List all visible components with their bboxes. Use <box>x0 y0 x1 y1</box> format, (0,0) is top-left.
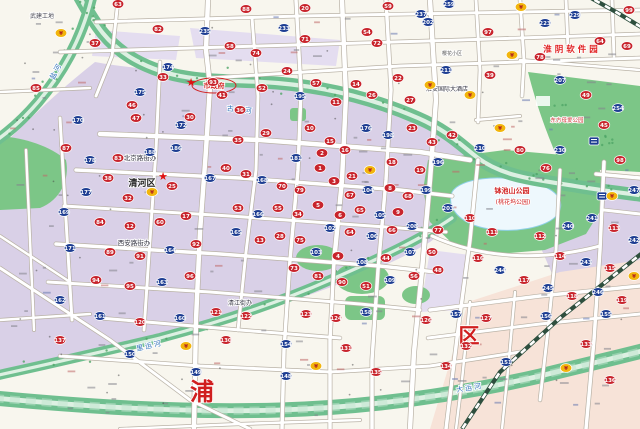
svg-text:254: 254 <box>612 106 624 112</box>
svg-text:207: 207 <box>554 78 566 84</box>
poi-marker: 202 <box>422 18 434 27</box>
svg-text:24: 24 <box>283 69 291 75</box>
svg-text:126: 126 <box>420 318 432 324</box>
svg-text:247: 247 <box>628 188 640 194</box>
poi-marker: 188 <box>144 148 156 157</box>
svg-text:114: 114 <box>554 254 566 260</box>
poi-marker: 108 <box>356 258 368 267</box>
poi-marker: 6 <box>334 211 346 220</box>
poi-marker: 16 <box>339 146 351 155</box>
svg-text:35: 35 <box>234 138 242 144</box>
svg-text:50: 50 <box>428 250 436 256</box>
poi-marker: 123 <box>300 310 312 319</box>
svg-text:49: 49 <box>582 93 590 99</box>
svg-text:43: 43 <box>428 140 436 146</box>
svg-text:133: 133 <box>580 342 592 348</box>
svg-text:41: 41 <box>218 93 226 99</box>
svg-text:242: 242 <box>628 238 640 244</box>
svg-text:52: 52 <box>258 86 266 92</box>
svg-text:105: 105 <box>374 213 386 219</box>
svg-text:40: 40 <box>222 166 230 172</box>
svg-text:39: 39 <box>486 73 494 79</box>
poi-marker: 121 <box>210 308 222 317</box>
poi-marker: 42 <box>446 131 458 140</box>
svg-text:13: 13 <box>256 238 264 244</box>
svg-text:117: 117 <box>518 278 530 284</box>
poi-marker: 244 <box>494 266 506 275</box>
poi-marker: 43 <box>426 138 438 147</box>
poi-marker: 132 <box>460 342 472 351</box>
poi-marker: 230 <box>554 146 566 155</box>
poi-marker: 89 <box>104 248 116 257</box>
poi-marker: 5 <box>312 201 324 210</box>
svg-text:¥: ¥ <box>564 366 568 372</box>
poi-marker: 102 <box>324 224 336 233</box>
poi-marker: 71 <box>299 35 311 44</box>
svg-text:103: 103 <box>310 250 322 256</box>
svg-text:25: 25 <box>168 184 176 190</box>
poi-marker: 167 <box>204 174 216 183</box>
svg-text:158: 158 <box>360 310 372 316</box>
svg-text:259: 259 <box>443 2 455 8</box>
poi-marker: 59 <box>382 2 394 11</box>
svg-text:172: 172 <box>175 123 187 129</box>
svg-text:131: 131 <box>340 346 352 352</box>
poi-marker: 82 <box>152 25 164 34</box>
poi-marker: 170 <box>72 116 84 125</box>
poi-marker: 77 <box>432 226 444 235</box>
svg-text:195: 195 <box>294 94 306 100</box>
svg-text:165: 165 <box>230 230 242 236</box>
poi-marker: 223 <box>539 19 551 28</box>
poi-marker: 118 <box>566 292 578 301</box>
poi-marker: 80 <box>514 146 526 155</box>
svg-text:156: 156 <box>540 314 552 320</box>
poi-marker: 207 <box>554 76 566 85</box>
poi-marker: 40 <box>220 164 232 173</box>
svg-text:162: 162 <box>54 298 66 304</box>
svg-text:243: 243 <box>580 260 592 266</box>
poi-marker: 98 <box>614 156 626 165</box>
poi-marker: 254 <box>612 104 624 113</box>
poi-marker: 114 <box>554 252 566 261</box>
poi-marker: 31 <box>240 170 252 179</box>
svg-text:181: 181 <box>290 156 302 162</box>
svg-text:30: 30 <box>186 115 194 121</box>
poi-marker: 75 <box>294 236 306 245</box>
svg-text:127: 127 <box>480 316 492 322</box>
svg-text:148: 148 <box>280 374 292 380</box>
poi-marker: 148 <box>280 372 292 381</box>
svg-text:14: 14 <box>352 82 360 88</box>
poi-marker: 181 <box>290 154 302 163</box>
svg-text:20: 20 <box>301 6 309 12</box>
svg-text:¥: ¥ <box>468 93 472 99</box>
poi-marker: 19 <box>414 166 426 175</box>
poi-marker: 163 <box>156 278 168 287</box>
poi-marker: 60 <box>154 218 166 227</box>
poi-marker: 162 <box>54 296 66 305</box>
svg-text:85: 85 <box>32 86 40 92</box>
poi-marker: 113 <box>608 224 620 233</box>
poi-marker: 67 <box>344 191 356 200</box>
poi-marker: 115 <box>604 264 616 273</box>
svg-text:81: 81 <box>314 274 322 280</box>
svg-text:15: 15 <box>326 139 334 145</box>
poi-marker: 35 <box>232 136 244 145</box>
svg-text:9: 9 <box>396 210 400 216</box>
svg-text:45: 45 <box>600 123 608 129</box>
poi-marker: 243 <box>580 258 592 267</box>
poi-marker: 160 <box>174 314 186 323</box>
poi-marker: 65 <box>354 206 366 215</box>
svg-text:64: 64 <box>596 39 604 45</box>
svg-text:134: 134 <box>440 364 452 370</box>
svg-text:26: 26 <box>368 93 376 99</box>
map-frame: 武建工地北京路街办西安路街办清江街办市政府淮阴软件园东方母爱公园淮安国际大酒店钵… <box>0 0 640 429</box>
poi-marker: 174 <box>162 63 174 72</box>
svg-text:240: 240 <box>562 224 574 230</box>
svg-text:235: 235 <box>199 29 211 35</box>
poi-marker: 177 <box>80 188 92 197</box>
poi-marker: 242 <box>628 236 640 245</box>
svg-text:59: 59 <box>384 4 392 10</box>
poi-marker: 186 <box>170 144 182 153</box>
svg-text:6: 6 <box>338 213 342 219</box>
svg-text:99: 99 <box>625 8 633 14</box>
poi-marker: 58 <box>224 42 236 51</box>
svg-text:54: 54 <box>363 30 371 36</box>
poi-marker: 131 <box>340 344 352 353</box>
poi-marker: 229 <box>569 11 581 20</box>
poi-marker: 39 <box>484 71 496 80</box>
svg-text:211: 211 <box>440 68 452 74</box>
poi-marker: 56 <box>408 272 420 281</box>
poi-marker: 73 <box>288 264 300 273</box>
svg-text:47: 47 <box>132 116 140 122</box>
poi-marker: 26 <box>366 91 378 100</box>
poi-marker: ¥ <box>606 192 618 201</box>
svg-text:¥: ¥ <box>314 364 318 370</box>
svg-text:¥: ¥ <box>498 126 502 132</box>
svg-text:38: 38 <box>104 176 112 182</box>
svg-text:104: 104 <box>362 188 374 194</box>
svg-text:230: 230 <box>554 148 566 154</box>
svg-text:19: 19 <box>416 168 424 174</box>
poi-marker: 28 <box>274 232 286 241</box>
svg-text:33: 33 <box>159 75 167 81</box>
svg-text:110: 110 <box>464 216 476 222</box>
svg-text:74: 74 <box>252 51 260 57</box>
svg-text:237: 237 <box>415 12 427 18</box>
poi-marker: 23 <box>406 124 418 133</box>
svg-text:5: 5 <box>316 203 320 209</box>
svg-text:51: 51 <box>362 284 370 290</box>
svg-text:63: 63 <box>114 2 122 8</box>
poi-marker: 165 <box>230 228 242 237</box>
svg-text:199: 199 <box>420 188 432 194</box>
svg-text:92: 92 <box>192 242 200 248</box>
poi-marker: 22 <box>392 74 404 83</box>
poi-marker: ¥ <box>494 124 506 133</box>
poi-marker: 96 <box>184 272 196 281</box>
svg-text:42: 42 <box>448 133 456 139</box>
svg-text:53: 53 <box>234 206 242 212</box>
poi-marker: ¥ <box>628 272 640 281</box>
poi-marker: 48 <box>432 266 444 275</box>
svg-text:170: 170 <box>72 118 84 124</box>
poi-marker: 135 <box>370 368 382 377</box>
poi-label: 樱花小区 <box>442 50 462 57</box>
svg-text:171: 171 <box>64 246 76 252</box>
poi-marker: 3 <box>328 177 340 186</box>
svg-text:28: 28 <box>276 234 284 240</box>
poi-marker: 72 <box>371 39 383 48</box>
svg-text:68: 68 <box>404 194 412 200</box>
svg-text:175: 175 <box>134 90 146 96</box>
svg-text:37: 37 <box>91 41 99 47</box>
poi-marker: 233 <box>278 24 290 33</box>
svg-text:121: 121 <box>210 310 222 316</box>
poi-marker: 235 <box>199 27 211 36</box>
poi-label: 钵池山公园 <box>494 186 530 195</box>
svg-text:23: 23 <box>408 126 416 132</box>
poi-marker: 151 <box>500 358 512 367</box>
poi-marker: 164 <box>164 246 176 255</box>
poi-marker: 245 <box>542 284 554 293</box>
poi-marker: 66 <box>386 226 398 235</box>
poi-marker: 199 <box>420 186 432 195</box>
svg-text:89: 89 <box>106 250 114 256</box>
poi-marker: 208 <box>406 222 418 231</box>
svg-text:130: 130 <box>220 338 232 344</box>
poi-marker: 32 <box>122 194 134 203</box>
poi-marker: 111 <box>486 228 498 237</box>
poi-label: 淮阴软件园 <box>543 44 601 55</box>
poi-marker: 9 <box>392 208 404 217</box>
svg-text:48: 48 <box>434 268 442 274</box>
svg-text:32: 32 <box>124 196 132 202</box>
poi-marker: 110 <box>464 214 476 223</box>
svg-text:169: 169 <box>58 210 70 216</box>
svg-text:¥: ¥ <box>610 194 614 200</box>
poi-marker: 11 <box>330 98 342 107</box>
poi-marker: 136 <box>604 376 616 385</box>
svg-text:¥: ¥ <box>510 53 514 59</box>
poi-marker: 133 <box>580 340 592 349</box>
svg-text:203: 203 <box>442 206 454 212</box>
poi-marker: ¥ <box>424 81 436 90</box>
poi-marker: 203 <box>442 204 454 213</box>
poi-marker: 85 <box>30 84 42 93</box>
poi-label: 清江街办 <box>228 299 252 307</box>
svg-text:168: 168 <box>256 178 268 184</box>
svg-text:4: 4 <box>336 254 340 260</box>
svg-text:164: 164 <box>164 248 176 254</box>
svg-text:27: 27 <box>406 98 414 104</box>
poi-marker: ¥ <box>506 51 518 60</box>
svg-text:18: 18 <box>388 160 396 166</box>
svg-text:98: 98 <box>616 158 624 164</box>
svg-text:136: 136 <box>604 378 616 384</box>
svg-text:166: 166 <box>252 212 264 218</box>
svg-text:198: 198 <box>382 133 394 139</box>
star-icon: ★ <box>186 76 196 89</box>
poi-marker: 149 <box>190 368 202 377</box>
svg-text:157: 157 <box>450 312 462 318</box>
poi-marker: 169 <box>58 208 70 217</box>
poi-marker: 57 <box>310 79 322 88</box>
poi-marker: 95 <box>124 282 136 291</box>
svg-text:67: 67 <box>346 193 354 199</box>
poi-marker: ¥ <box>364 166 376 175</box>
svg-text:229: 229 <box>569 13 581 19</box>
poi-marker: ¥ <box>180 342 192 351</box>
svg-text:65: 65 <box>356 208 364 214</box>
poi-marker: ¥ <box>560 364 572 373</box>
svg-text:122: 122 <box>240 314 252 320</box>
poi-marker: 97 <box>482 28 494 37</box>
svg-text:188: 188 <box>144 150 156 156</box>
svg-text:11: 11 <box>332 100 340 106</box>
svg-text:154: 154 <box>280 342 292 348</box>
poi-marker: 117 <box>518 276 530 285</box>
svg-text:29: 29 <box>262 131 270 137</box>
svg-text:119: 119 <box>616 298 628 304</box>
poi-marker: 166 <box>252 210 264 219</box>
poi-marker: 64 <box>344 228 356 237</box>
svg-text:123: 123 <box>300 312 312 318</box>
svg-text:112: 112 <box>534 234 546 240</box>
svg-text:22: 22 <box>394 76 402 82</box>
poi-marker: 137 <box>54 336 66 345</box>
poi-marker: 246 <box>592 288 604 297</box>
poi-marker: 49 <box>580 91 592 100</box>
svg-text:233: 233 <box>278 26 290 32</box>
svg-text:137: 137 <box>54 338 66 344</box>
poi-marker: 109 <box>384 276 396 285</box>
svg-text:31: 31 <box>242 172 250 178</box>
svg-text:118: 118 <box>566 294 578 300</box>
map-canvas[interactable]: 武建工地北京路街办西安路街办清江街办市政府淮阴软件园东方母爱公园淮安国际大酒店钵… <box>0 0 640 429</box>
poi-marker: 84 <box>94 218 106 227</box>
svg-text:55: 55 <box>274 206 282 212</box>
svg-text:90: 90 <box>338 280 346 286</box>
poi-marker: 74 <box>250 49 262 58</box>
poi-marker: 63 <box>112 0 124 8</box>
poi-marker: 36 <box>234 106 246 115</box>
poi-marker: 37 <box>89 39 101 48</box>
poi-marker: 24 <box>281 67 293 76</box>
svg-text:94: 94 <box>92 278 100 284</box>
svg-text:167: 167 <box>204 176 216 182</box>
poi-label: 西安路街办 <box>118 238 151 247</box>
svg-text:196: 196 <box>432 160 444 166</box>
svg-text:95: 95 <box>126 284 134 290</box>
svg-text:174: 174 <box>162 65 174 71</box>
svg-text:83: 83 <box>114 156 122 162</box>
poi-marker: 106 <box>366 232 378 241</box>
svg-text:93: 93 <box>209 80 217 86</box>
poi-marker: ¥ <box>55 29 67 38</box>
poi-marker: 99 <box>623 6 635 15</box>
svg-text:75: 75 <box>296 238 304 244</box>
poi-marker: 94 <box>90 276 102 285</box>
poi-marker: 259 <box>443 0 455 8</box>
svg-text:82: 82 <box>154 27 162 33</box>
poi-marker: 13 <box>254 236 266 245</box>
poi-marker: 55 <box>272 204 284 213</box>
poi-marker: 119 <box>616 296 628 305</box>
svg-text:¥: ¥ <box>150 190 154 196</box>
poi-marker: 90 <box>336 278 348 287</box>
poi-marker: 112 <box>534 232 546 241</box>
poi-marker: 10 <box>304 124 316 133</box>
poi-marker: 17 <box>180 212 192 221</box>
poi-marker: 20 <box>299 4 311 13</box>
poi-marker: 127 <box>480 314 492 323</box>
svg-text:176: 176 <box>360 126 372 132</box>
svg-text:111: 111 <box>486 230 498 236</box>
svg-text:163: 163 <box>156 280 168 286</box>
svg-text:186: 186 <box>170 146 182 152</box>
poi-marker: 70 <box>276 182 288 191</box>
svg-text:202: 202 <box>422 20 434 26</box>
poi-marker: 45 <box>598 121 610 130</box>
svg-text:34: 34 <box>294 212 302 218</box>
svg-text:21: 21 <box>348 174 356 180</box>
svg-text:60: 60 <box>156 220 164 226</box>
poi-marker: 107 <box>404 248 416 257</box>
svg-text:120: 120 <box>134 320 146 326</box>
svg-text:161: 161 <box>94 314 106 320</box>
poi-marker: 154 <box>280 340 292 349</box>
svg-text:149: 149 <box>190 370 202 376</box>
poi-marker: 81 <box>312 272 324 281</box>
poi-marker: 68 <box>402 192 414 201</box>
svg-text:46: 46 <box>128 103 136 109</box>
poi-marker: 93 <box>207 78 219 87</box>
svg-text:155: 155 <box>600 312 612 318</box>
poi-marker: 241 <box>586 214 598 223</box>
svg-text:¥: ¥ <box>632 274 636 280</box>
road-sign <box>597 192 607 200</box>
poi-marker: 240 <box>562 222 574 231</box>
district-big-char: 浦 <box>190 378 214 406</box>
poi-marker: 33 <box>157 73 169 82</box>
poi-label: 武建工地 <box>30 12 54 20</box>
poi-marker: 130 <box>220 336 232 345</box>
svg-text:106: 106 <box>366 234 378 240</box>
svg-text:69: 69 <box>623 44 631 50</box>
poi-marker: 210 <box>474 144 486 153</box>
svg-text:113: 113 <box>608 226 620 232</box>
svg-text:8: 8 <box>388 186 392 192</box>
poi-marker: ¥ <box>464 91 476 100</box>
poi-marker: 47 <box>130 114 142 123</box>
poi-label: (桃花坞公园) <box>496 198 531 206</box>
poi-marker: 176 <box>360 124 372 133</box>
poi-marker: 8 <box>384 184 396 193</box>
svg-text:178: 178 <box>84 158 96 164</box>
poi-marker: 211 <box>440 66 452 75</box>
poi-marker: 171 <box>64 244 76 253</box>
poi-marker: 2 <box>316 149 328 158</box>
poi-marker: 54 <box>361 28 373 37</box>
svg-text:97: 97 <box>484 30 492 36</box>
poi-marker: 150 <box>124 350 136 359</box>
svg-text:77: 77 <box>434 228 442 234</box>
